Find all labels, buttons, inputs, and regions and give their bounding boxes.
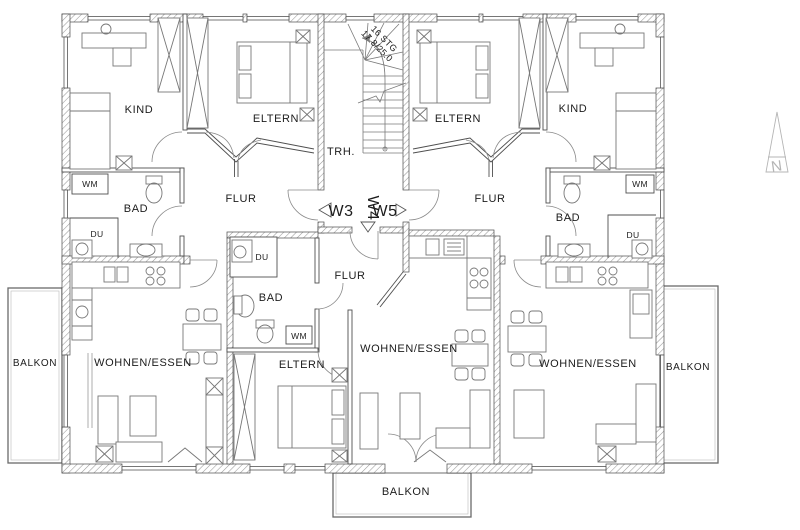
dining-left: [183, 309, 221, 364]
living-right-furniture: [514, 384, 656, 462]
room-label-du-mid: DU: [256, 252, 269, 262]
room-label-wm-right: WM: [632, 179, 648, 189]
north-label: N: [770, 157, 783, 175]
unit-label-w3: W3: [329, 203, 354, 220]
room-label-kind-left: KIND: [125, 104, 154, 116]
room-label-eltern-right: ELTERN: [435, 113, 481, 125]
room-label-wohnen-left: WOHNEN/ESSEN: [94, 357, 192, 369]
eltern-left-furniture: [187, 18, 314, 128]
kitchen-right: [546, 262, 652, 338]
room-label-flur-mid: FLUR: [334, 270, 365, 282]
unit-label-w5: W5: [373, 203, 398, 220]
room-label-balkon-right: BALKON: [666, 362, 710, 373]
room-label-wm-mid: WM: [291, 331, 307, 341]
kitchen-left: [72, 262, 180, 340]
room-label-bad-mid: BAD: [259, 292, 283, 304]
room-label-du-right: DU: [627, 230, 640, 240]
room-label-wohnen-right: WOHNEN/ESSEN: [539, 358, 637, 370]
room-label-bad-right: BAD: [556, 212, 580, 224]
room-label-eltern-mid: ELTERN: [279, 359, 325, 371]
floor-plan-page: N KIND ELTERN TRH. FLUR ELTERN KIND FLUR…: [0, 0, 800, 530]
floor-plan-drawing: N KIND ELTERN TRH. FLUR ELTERN KIND FLUR…: [0, 0, 800, 530]
unit-labels: W3 W4 W5: [329, 196, 398, 221]
eltern-right-furniture: [413, 18, 540, 128]
room-label-wm-left: WM: [82, 179, 98, 189]
room-label-du-left: DU: [91, 229, 104, 239]
room-label-wohnen-mid: WOHNEN/ESSEN: [360, 343, 458, 355]
kind-left-furniture: [70, 18, 180, 170]
north-arrow-icon: N: [766, 112, 788, 176]
room-label-flur-left: FLUR: [225, 193, 256, 205]
balcony-right: [660, 286, 718, 463]
living-left-furniture: [96, 378, 223, 464]
balcony-left: [8, 288, 62, 463]
room-label-balkon-left: BALKON: [13, 358, 57, 369]
kind-right-furniture: [546, 18, 656, 170]
w4-arrow-icon: [361, 222, 375, 232]
room-label-kind-right: KIND: [559, 103, 588, 115]
room-label-bad-left: BAD: [124, 203, 148, 215]
stairwell-label: TRH.: [327, 146, 355, 158]
room-label-eltern-left: ELTERN: [253, 113, 299, 125]
dining-middle: [452, 330, 488, 380]
room-label-balkon-bottom: BALKON: [382, 486, 430, 498]
room-label-flur-right: FLUR: [474, 193, 505, 205]
w5-arrow-icon: [396, 204, 406, 216]
living-middle-furniture: [332, 368, 490, 462]
kitchen-middle: [409, 236, 491, 310]
